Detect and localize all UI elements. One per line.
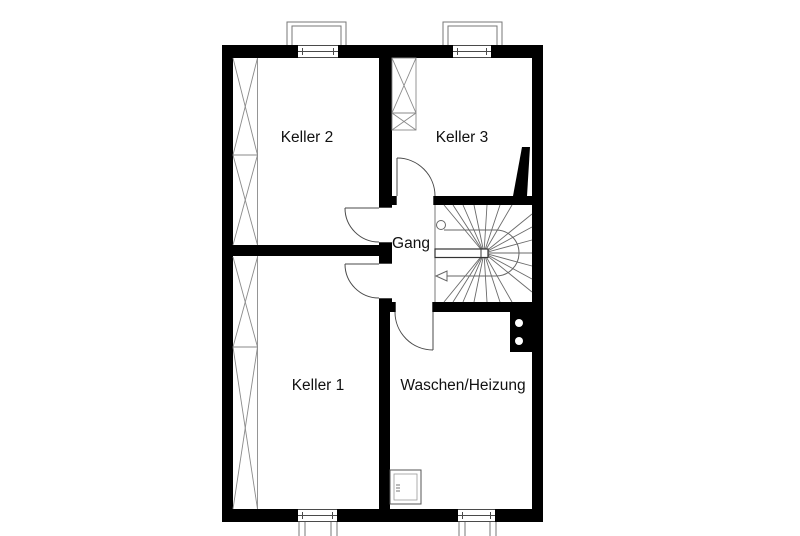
door-keller2 <box>345 208 392 243</box>
light-well <box>443 22 502 45</box>
door-keller1 <box>345 264 392 299</box>
niche-wall-stub <box>513 147 530 196</box>
room-label-gang: Gang <box>392 235 430 252</box>
flue-icon <box>515 319 523 327</box>
room-label-waschen: Waschen/Heizung <box>400 377 525 394</box>
left-hatch-strip <box>233 58 258 509</box>
floor-plan-drawing: Keller 2 Keller 3 Gang Keller 1 Waschen/… <box>0 0 800 536</box>
light-well <box>299 522 337 536</box>
flue-icon <box>515 337 523 345</box>
window-bottom-left <box>298 509 337 536</box>
room-label-keller3: Keller 3 <box>436 129 489 146</box>
door-keller3 <box>397 158 436 205</box>
fixture-mark <box>396 485 400 491</box>
walk-line-start-circle <box>437 221 446 230</box>
floor-plan: Keller 2 Keller 3 Gang Keller 1 Waschen/… <box>0 0 800 536</box>
light-well <box>287 22 346 45</box>
walk-line-arrow-icon <box>436 271 447 281</box>
interior-walls <box>233 58 532 509</box>
keller3-hatch-box <box>392 58 416 130</box>
room-label-keller1: Keller 1 <box>292 377 345 394</box>
window-bottom-right <box>458 509 496 536</box>
light-well <box>459 522 496 536</box>
room-label-keller2: Keller 2 <box>281 129 334 146</box>
door-waschen <box>395 302 433 350</box>
chimney-block <box>510 312 532 352</box>
stair-handrail <box>435 249 488 258</box>
fixture-box <box>390 470 421 504</box>
staircase <box>435 205 532 302</box>
